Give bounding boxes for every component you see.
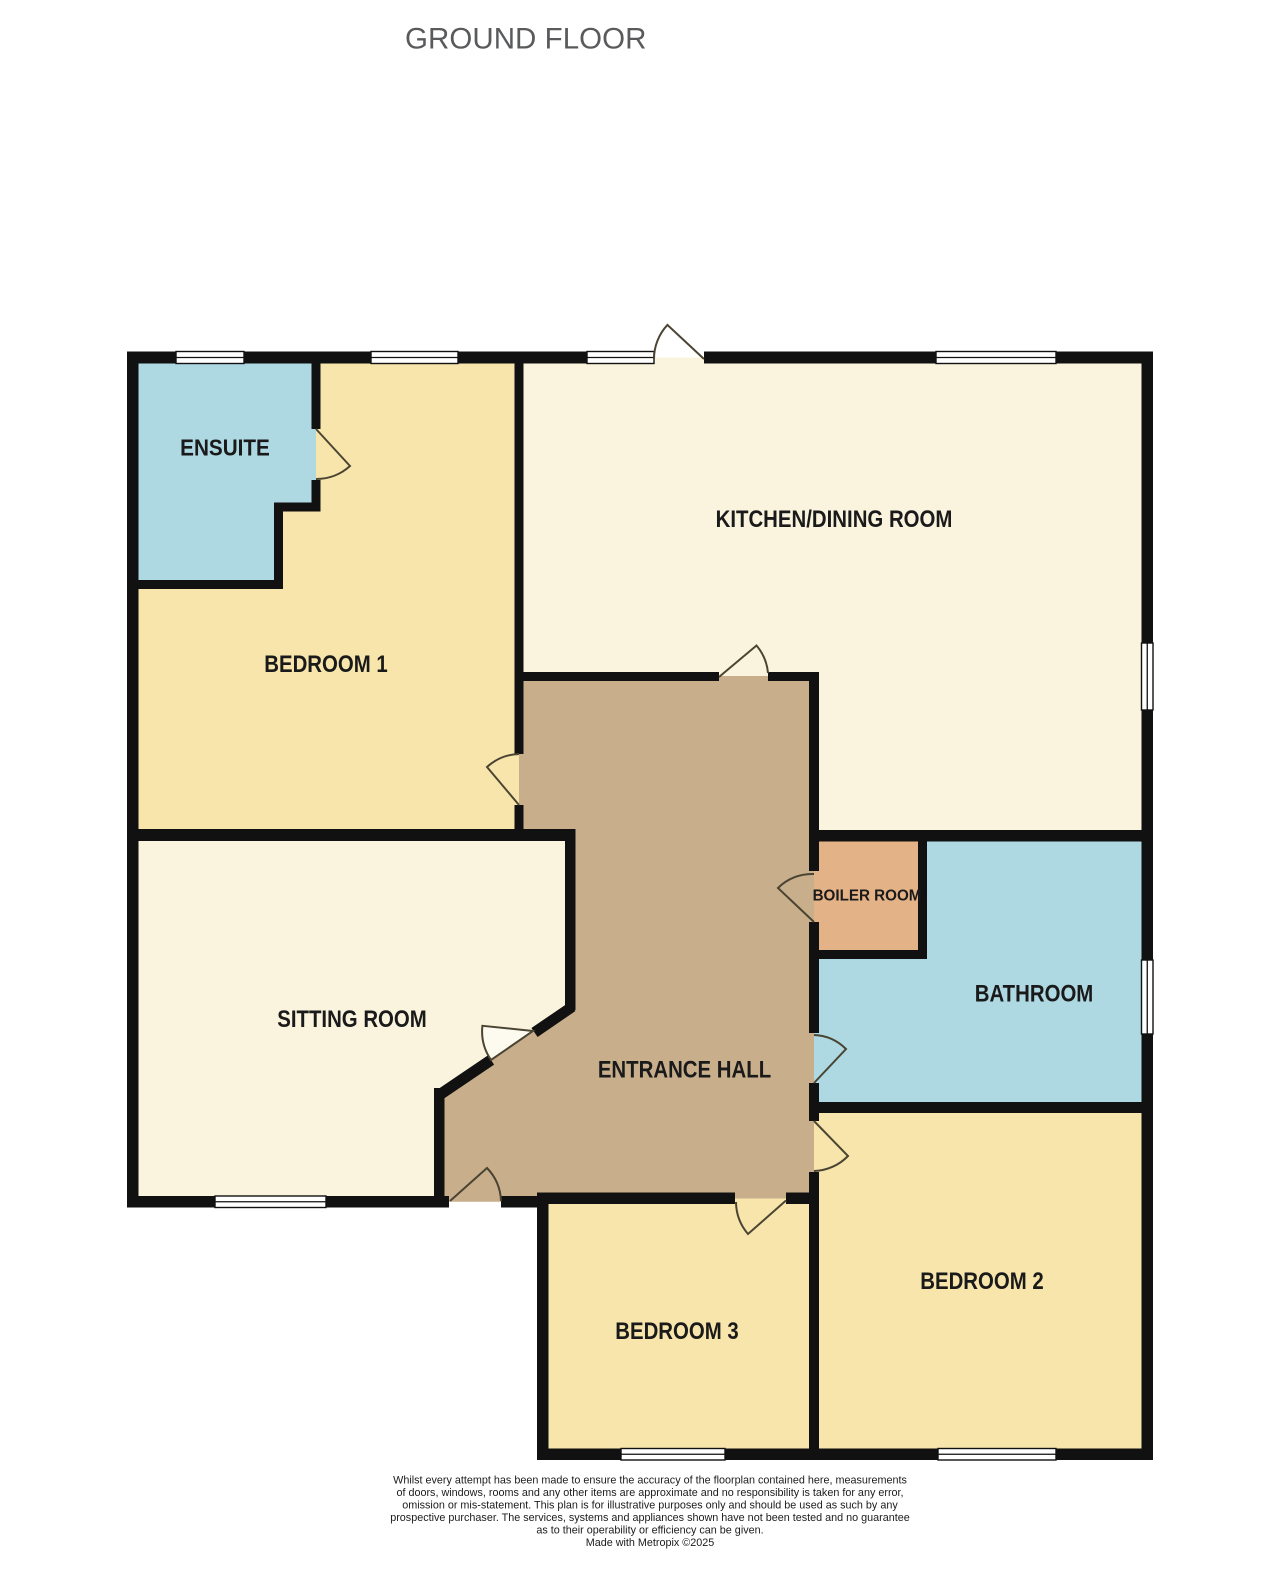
svg-text:KITCHEN/DINING ROOM: KITCHEN/DINING ROOM bbox=[716, 506, 953, 533]
svg-text:SITTING ROOM: SITTING ROOM bbox=[277, 1006, 427, 1033]
svg-text:ENTRANCE HALL: ENTRANCE HALL bbox=[598, 1056, 771, 1083]
svg-text:prospective purchaser. The ser: prospective purchaser. The services, sys… bbox=[390, 1512, 910, 1524]
svg-text:Made with Metropix ©2025: Made with Metropix ©2025 bbox=[586, 1537, 715, 1549]
svg-text:of doors, windows, rooms and a: of doors, windows, rooms and any other i… bbox=[396, 1487, 903, 1499]
svg-text:Whilst every attempt has been: Whilst every attempt has been made to en… bbox=[393, 1475, 907, 1487]
svg-text:BEDROOM 3: BEDROOM 3 bbox=[615, 1318, 739, 1345]
svg-text:BOILER ROOM: BOILER ROOM bbox=[813, 887, 922, 904]
svg-text:BATHROOM: BATHROOM bbox=[975, 980, 1094, 1007]
svg-text:BEDROOM 2: BEDROOM 2 bbox=[920, 1268, 1044, 1295]
svg-text:GROUND FLOOR: GROUND FLOOR bbox=[405, 23, 647, 56]
svg-text:as to their operability or eff: as to their operability or efficiency ca… bbox=[536, 1524, 763, 1536]
svg-text:ENSUITE: ENSUITE bbox=[180, 435, 270, 461]
svg-text:BEDROOM 1: BEDROOM 1 bbox=[264, 651, 388, 678]
svg-text:omission or mis-statement. Thi: omission or mis-statement. This plan is … bbox=[402, 1499, 898, 1511]
